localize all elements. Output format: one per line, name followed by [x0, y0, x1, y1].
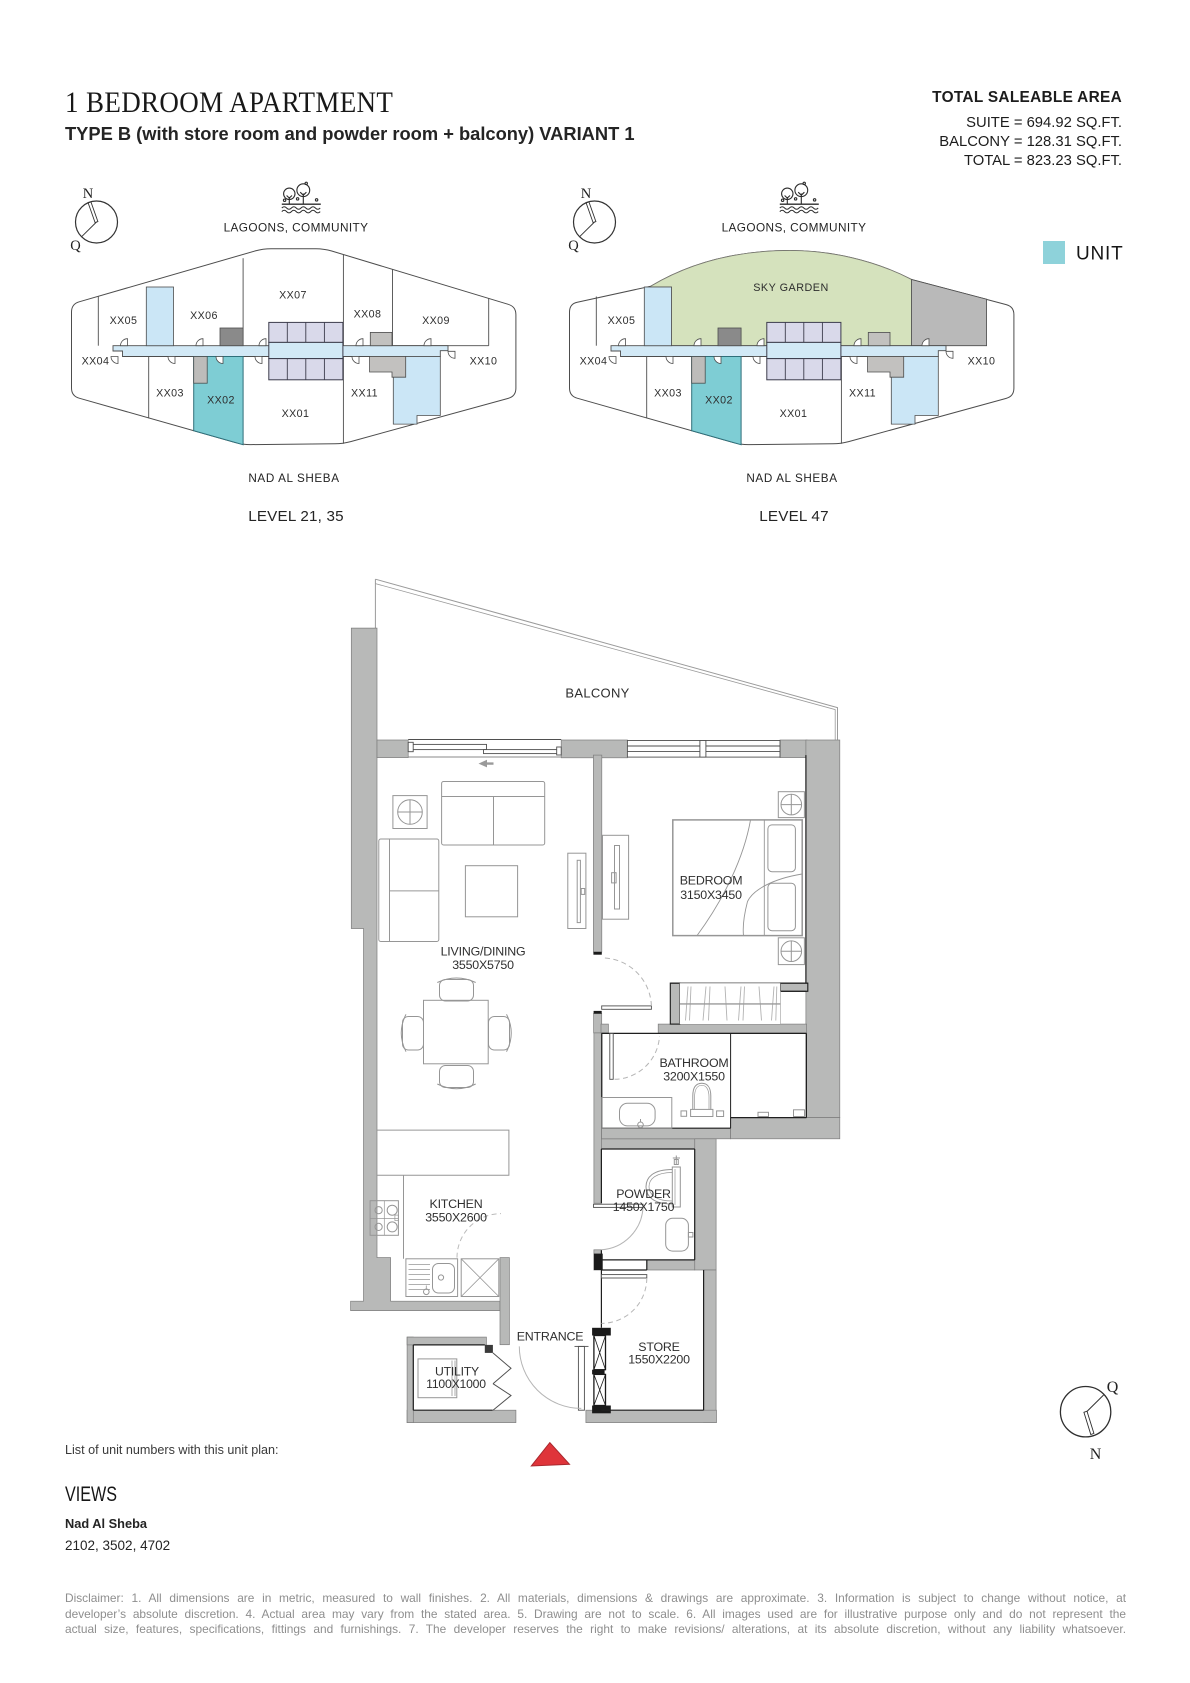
svg-text:N: N [1090, 1446, 1102, 1463]
svg-text:BATHROOM: BATHROOM [659, 1056, 728, 1070]
svg-text:XX08: XX08 [354, 309, 382, 321]
svg-text:BEDROOM: BEDROOM [680, 874, 743, 888]
svg-text:3550X2600: 3550X2600 [425, 1211, 487, 1225]
svg-text:POWDER: POWDER [616, 1187, 671, 1201]
svg-text:KITCHEN: KITCHEN [430, 1197, 483, 1211]
svg-text:1550X2200: 1550X2200 [628, 1352, 690, 1366]
svg-text:XX07: XX07 [279, 290, 307, 302]
svg-text:LEVEL 47: LEVEL 47 [759, 508, 828, 525]
svg-text:SKY GARDEN: SKY GARDEN [753, 282, 829, 294]
svg-text:UNIT: UNIT [1076, 244, 1124, 265]
svg-text:LIVING/DINING: LIVING/DINING [441, 945, 526, 959]
svg-text:ENTRANCE: ENTRANCE [517, 1330, 584, 1344]
svg-text:XX06: XX06 [190, 310, 218, 322]
svg-text:1450X1750: 1450X1750 [613, 1200, 675, 1214]
svg-text:BALCONY: BALCONY [565, 686, 629, 701]
svg-text:1100X1000: 1100X1000 [426, 1377, 486, 1391]
svg-text:3550X5750: 3550X5750 [452, 958, 514, 972]
svg-text:XX09: XX09 [422, 315, 450, 327]
svg-text:Q: Q [1107, 1379, 1119, 1396]
svg-text:LEVEL 21, 35: LEVEL 21, 35 [248, 508, 344, 525]
svg-text:3150X3450: 3150X3450 [680, 888, 742, 902]
svg-text:3200X1550: 3200X1550 [663, 1070, 725, 1084]
